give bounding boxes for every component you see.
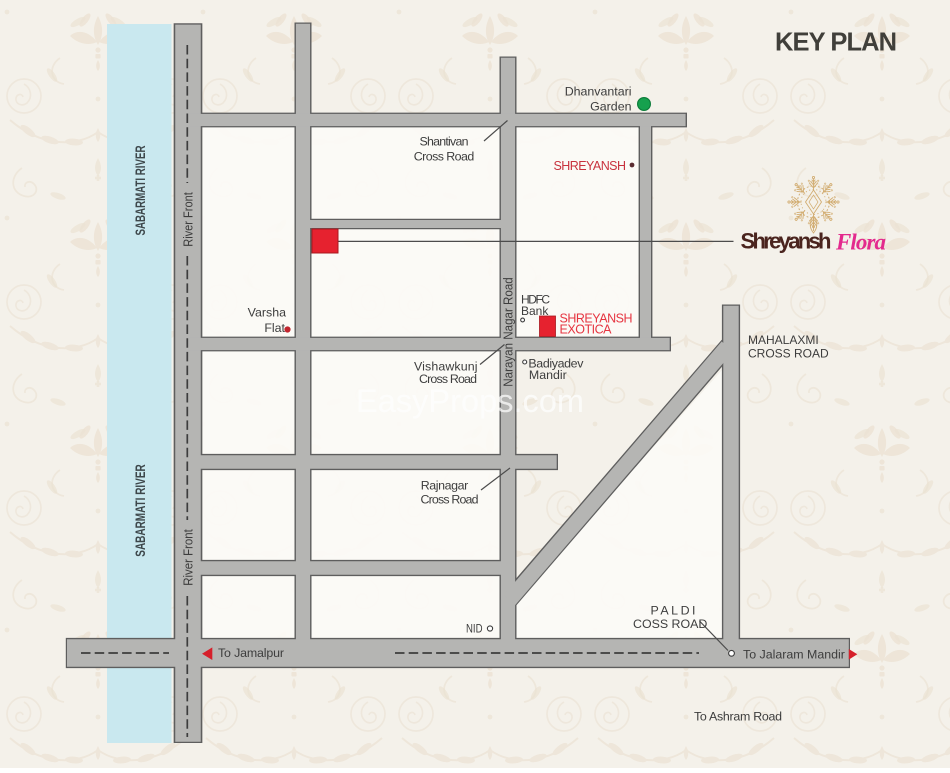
svg-text:SABARMATI RIVER: SABARMATI RIVER (133, 145, 148, 235)
svg-text:To Jalaram Mandir: To Jalaram Mandir (743, 648, 845, 662)
svg-text:Flora: Flora (835, 230, 886, 255)
svg-text:Garden: Garden (590, 100, 631, 114)
svg-text:SABARMATI RIVER: SABARMATI RIVER (132, 464, 148, 557)
svg-text:River Front: River Front (181, 529, 196, 586)
svg-text:Shantivan: Shantivan (420, 135, 469, 149)
svg-text:To Jamalpur: To Jamalpur (218, 646, 284, 660)
svg-text:Flat: Flat (264, 321, 285, 335)
svg-text:EXOTICA: EXOTICA (560, 323, 613, 337)
svg-text:SHREYANSH: SHREYANSH (554, 159, 627, 173)
svg-text:River Front: River Front (181, 192, 196, 247)
svg-text:Dhanvantari: Dhanvantari (565, 85, 632, 99)
svg-text:Cross Road: Cross Road (421, 493, 479, 507)
svg-text:To Ashram Road: To Ashram Road (694, 710, 782, 724)
svg-text:Mandir: Mandir (529, 368, 567, 382)
svg-text:COSS ROAD: COSS ROAD (633, 617, 707, 631)
svg-text:KEY PLAN: KEY PLAN (775, 29, 897, 57)
svg-text:Bank: Bank (521, 304, 549, 318)
svg-text:NID: NID (466, 623, 483, 636)
svg-text:Rajnagar: Rajnagar (421, 479, 469, 493)
svg-text:Varsha: Varsha (248, 306, 286, 320)
svg-text:MAHALAXMI: MAHALAXMI (748, 333, 819, 347)
svg-text:CROSS ROAD: CROSS ROAD (748, 347, 829, 361)
svg-text:PALDI: PALDI (651, 604, 696, 618)
svg-text:Shreyansh: Shreyansh (741, 229, 832, 254)
svg-text:Narayan Nagar Road: Narayan Nagar Road (501, 277, 516, 386)
svg-text:Cross Road: Cross Road (414, 150, 475, 164)
svg-text:EasyProps.com: EasyProps.com (356, 383, 584, 419)
